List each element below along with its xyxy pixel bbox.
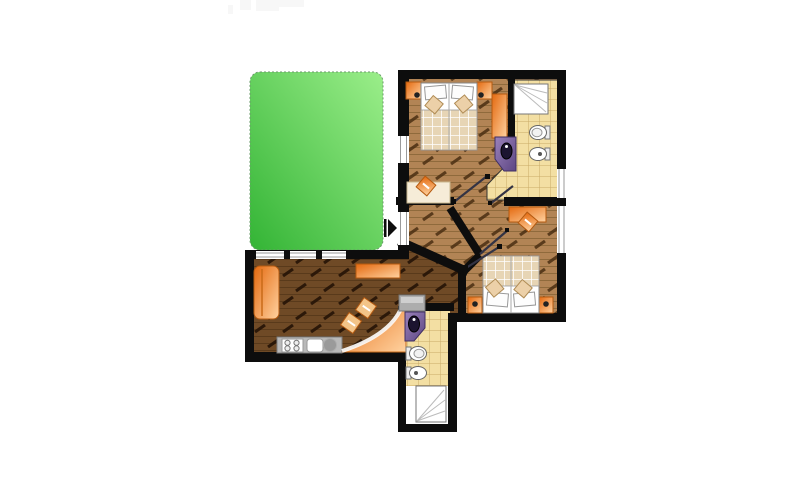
wall-bedroom2-west — [458, 270, 466, 316]
window-living-top — [256, 251, 346, 259]
sideboard — [356, 264, 400, 278]
floor-plan-svg — [0, 0, 800, 500]
window-bedroom1-west — [398, 136, 409, 163]
shower-cabin — [514, 84, 548, 114]
watermark-fragment — [228, 0, 304, 14]
lamp-icon — [543, 301, 549, 307]
lamp-icon — [472, 301, 478, 307]
entrance-arrow-icon — [384, 219, 397, 237]
round-hob — [324, 339, 337, 352]
wall-bath2-left — [398, 352, 406, 432]
wall-outer-top — [398, 70, 566, 79]
washing-machine — [399, 295, 425, 311]
bidet — [530, 148, 551, 161]
wall-living-left — [245, 250, 254, 362]
shower-cabin — [416, 386, 446, 422]
lamp-icon — [478, 92, 484, 98]
wall-bath1-south — [504, 197, 560, 206]
window-bedroom2-east — [557, 206, 566, 253]
toilet — [406, 347, 427, 361]
wall-bedroom2-bottom — [448, 313, 566, 322]
lamp-icon — [414, 92, 420, 98]
wall-bath2-right — [448, 313, 457, 432]
entrance-door-opening — [398, 212, 409, 245]
sofa — [254, 266, 279, 319]
garden-terrace — [250, 72, 383, 250]
kitchen-sink — [307, 339, 323, 352]
stove — [282, 339, 303, 352]
wall-bath2-north — [424, 303, 454, 311]
wall-outer-bottom — [398, 424, 457, 432]
wardrobe — [492, 94, 507, 138]
window-bathroom1-east — [557, 169, 566, 198]
bidet — [406, 367, 427, 380]
toilet — [530, 126, 551, 140]
floor-plan-canvas — [0, 0, 800, 500]
